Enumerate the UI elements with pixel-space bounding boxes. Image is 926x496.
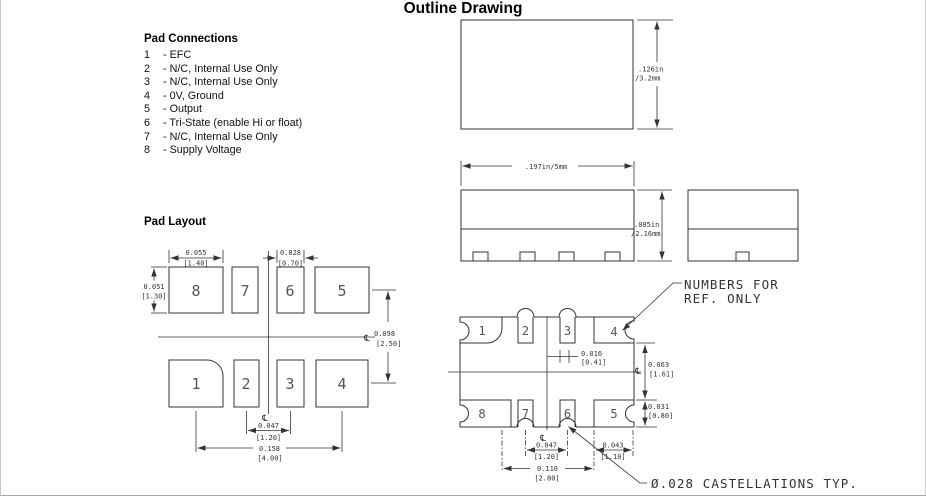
castellation-note: Ø.028 CASTELLATIONS TYP. — [651, 476, 858, 491]
layout-pad-6-label: 6 — [285, 282, 294, 300]
castellation-pad — [736, 252, 749, 261]
dim-pad-height-in: 0.051 — [143, 283, 164, 291]
bottom-pad-7-label: 7 — [522, 407, 529, 421]
ref-note-line1: NUMBERS FOR — [684, 277, 779, 292]
bottom-pad-2-label: 2 — [522, 324, 529, 338]
dim-pad-width-in: 0.055 — [185, 249, 206, 257]
castellation-pad — [559, 252, 574, 261]
dim-height-mm: /3.2mm — [635, 75, 660, 83]
dim-span-mm: [2.80] — [534, 475, 559, 483]
centerline-symbol: ℄ — [634, 367, 641, 377]
centerline-symbol: ℄ — [363, 334, 370, 344]
dim-pad-depth-mm: [0.80] — [648, 412, 673, 420]
castellation-pad — [473, 252, 488, 261]
bottom-pad-4-label: 4 — [610, 325, 617, 339]
bottom-pad-3-label: 3 — [564, 324, 571, 338]
end-view — [688, 190, 798, 261]
dim-pad-depth-in: 0.031 — [648, 403, 669, 411]
dim-row-pitch-mm: [2.50] — [376, 340, 401, 348]
dim-row-pitch-in: 0.098 — [374, 330, 395, 338]
bottom-pad-5-label: 5 — [610, 407, 617, 421]
side-view-body — [461, 190, 634, 261]
dim-inner-pad-pitch-mm: [1.20] — [256, 434, 281, 442]
castellation-pad — [520, 252, 535, 261]
dim-pad-pitch-mm: [1.20] — [534, 453, 559, 461]
dim-center-to-edge-in: 0.063 — [648, 361, 669, 369]
dim-span-in: 0.110 — [537, 465, 558, 473]
dim-side-height-in: .085in — [634, 221, 659, 229]
layout-pad-5-label: 5 — [337, 282, 346, 300]
outline-drawing-svg: 8 7 6 5 1 2 3 4 ℄ 0.055 [1.40] 0.028 [0.… — [1, 0, 926, 496]
layout-pad-4-label: 4 — [337, 375, 346, 393]
layout-pad-7-label: 7 — [240, 282, 249, 300]
dim-pad-pitch-in: 0.047 — [536, 442, 557, 450]
dim-pad-height-mm: [1.30] — [141, 293, 166, 301]
ref-note-line2: REF. ONLY — [684, 291, 762, 306]
layout-pad-1-label: 1 — [191, 375, 200, 393]
bottom-pad-6-label: 6 — [564, 407, 571, 421]
side-view: .197in/5mm .085in /2.16mm — [461, 161, 672, 261]
bottom-pad-1-label: 1 — [478, 324, 485, 338]
dim-outer-pad-span-in: 0.158 — [259, 445, 280, 453]
dim-width: .197in/5mm — [525, 163, 567, 171]
top-view: .126in /3.2mm — [461, 20, 673, 129]
dim-height-in: .126in — [638, 66, 663, 74]
ref-note-leader — [623, 283, 683, 331]
dim-center-to-edge-mm: [1.61] — [649, 371, 674, 379]
end-view-body — [688, 190, 798, 261]
dim-pad-width-mm: [1.40] — [183, 260, 208, 268]
dim-inner-pad-pitch-in: 0.047 — [258, 422, 279, 430]
dim-edge-pad-in: 0.043 — [602, 442, 623, 450]
dim-cast-width-mm: [0.41] — [581, 359, 606, 367]
castellation-pad — [605, 252, 620, 261]
pad-layout-diagram: 8 7 6 5 1 2 3 4 ℄ 0.055 [1.40] 0.028 [0.… — [141, 249, 401, 463]
layout-pad-8-label: 8 — [191, 282, 200, 300]
bottom-view: ℄ 1 2 3 4 8 7 6 5 0.016 [0.41] ℄ 0.063 [… — [448, 277, 858, 491]
bottom-pad-8-label: 8 — [478, 407, 485, 421]
dim-outer-pad-span-mm: [4.00] — [257, 455, 282, 463]
layout-pad-2-label: 2 — [241, 375, 250, 393]
top-view-body — [461, 20, 633, 129]
layout-pad-3-label: 3 — [285, 375, 294, 393]
dim-small-pad-width-in: 0.028 — [280, 249, 301, 257]
dim-small-pad-width-mm: [0.70] — [278, 260, 303, 268]
dim-side-height-mm: /2.16mm — [631, 230, 661, 238]
dim-cast-width-in: 0.016 — [581, 350, 602, 358]
datasheet-page: Outline Drawing Pad Connections 1- EFC 2… — [0, 0, 926, 496]
